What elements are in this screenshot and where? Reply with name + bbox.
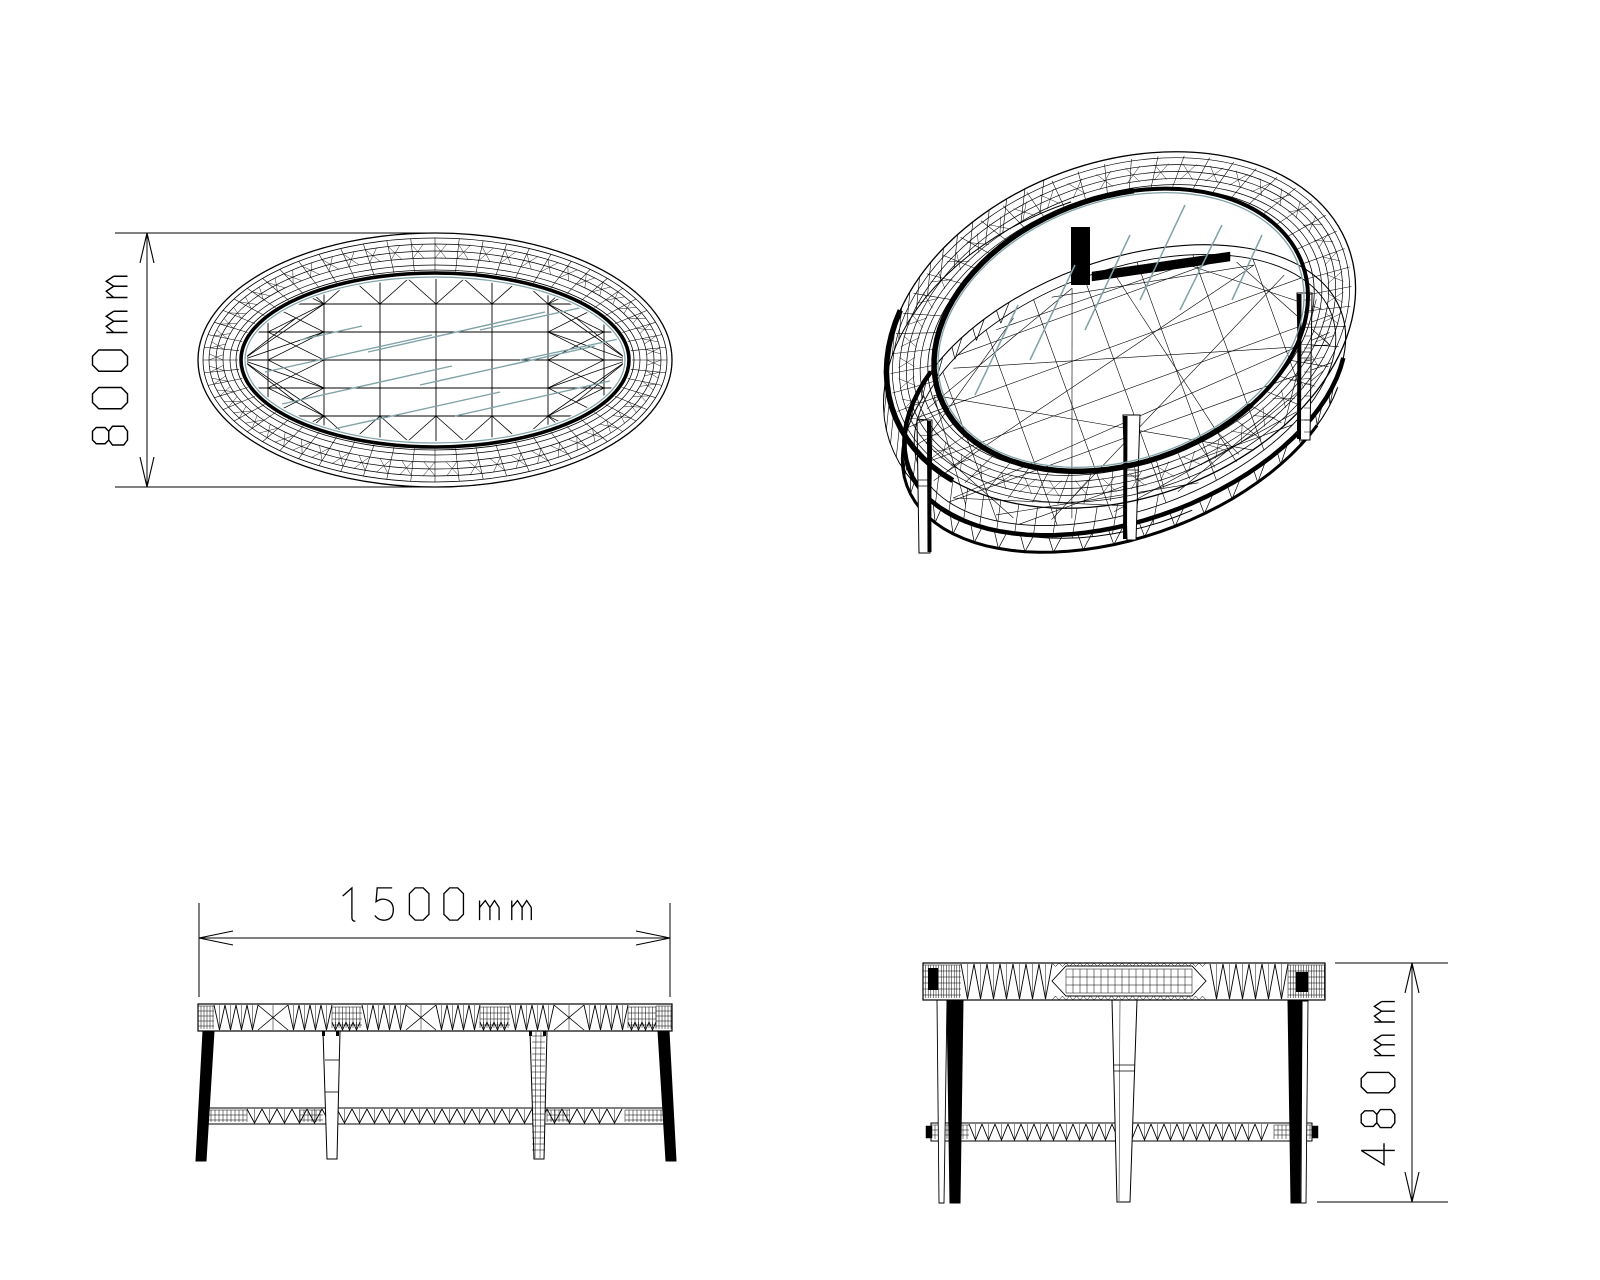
side-top-band [923, 963, 1325, 1000]
top-view-dimension-label [93, 276, 128, 445]
isometric-view [836, 89, 1406, 590]
front-top-band [198, 1004, 672, 1031]
front-view-dimension [199, 888, 670, 997]
front-elevation-view [196, 888, 676, 1161]
front-view-dimension-label [343, 888, 532, 921]
side-view-dimension [1317, 963, 1448, 1202]
cad-sheet: 800mm 1500mm 480mm [0, 0, 1600, 1280]
cad-canvas [0, 0, 1600, 1280]
side-elevation-view [923, 963, 1448, 1203]
front-shelf-band [207, 1108, 665, 1124]
side-view-dimension-label [1361, 1002, 1395, 1165]
top-view-plan [93, 233, 673, 487]
